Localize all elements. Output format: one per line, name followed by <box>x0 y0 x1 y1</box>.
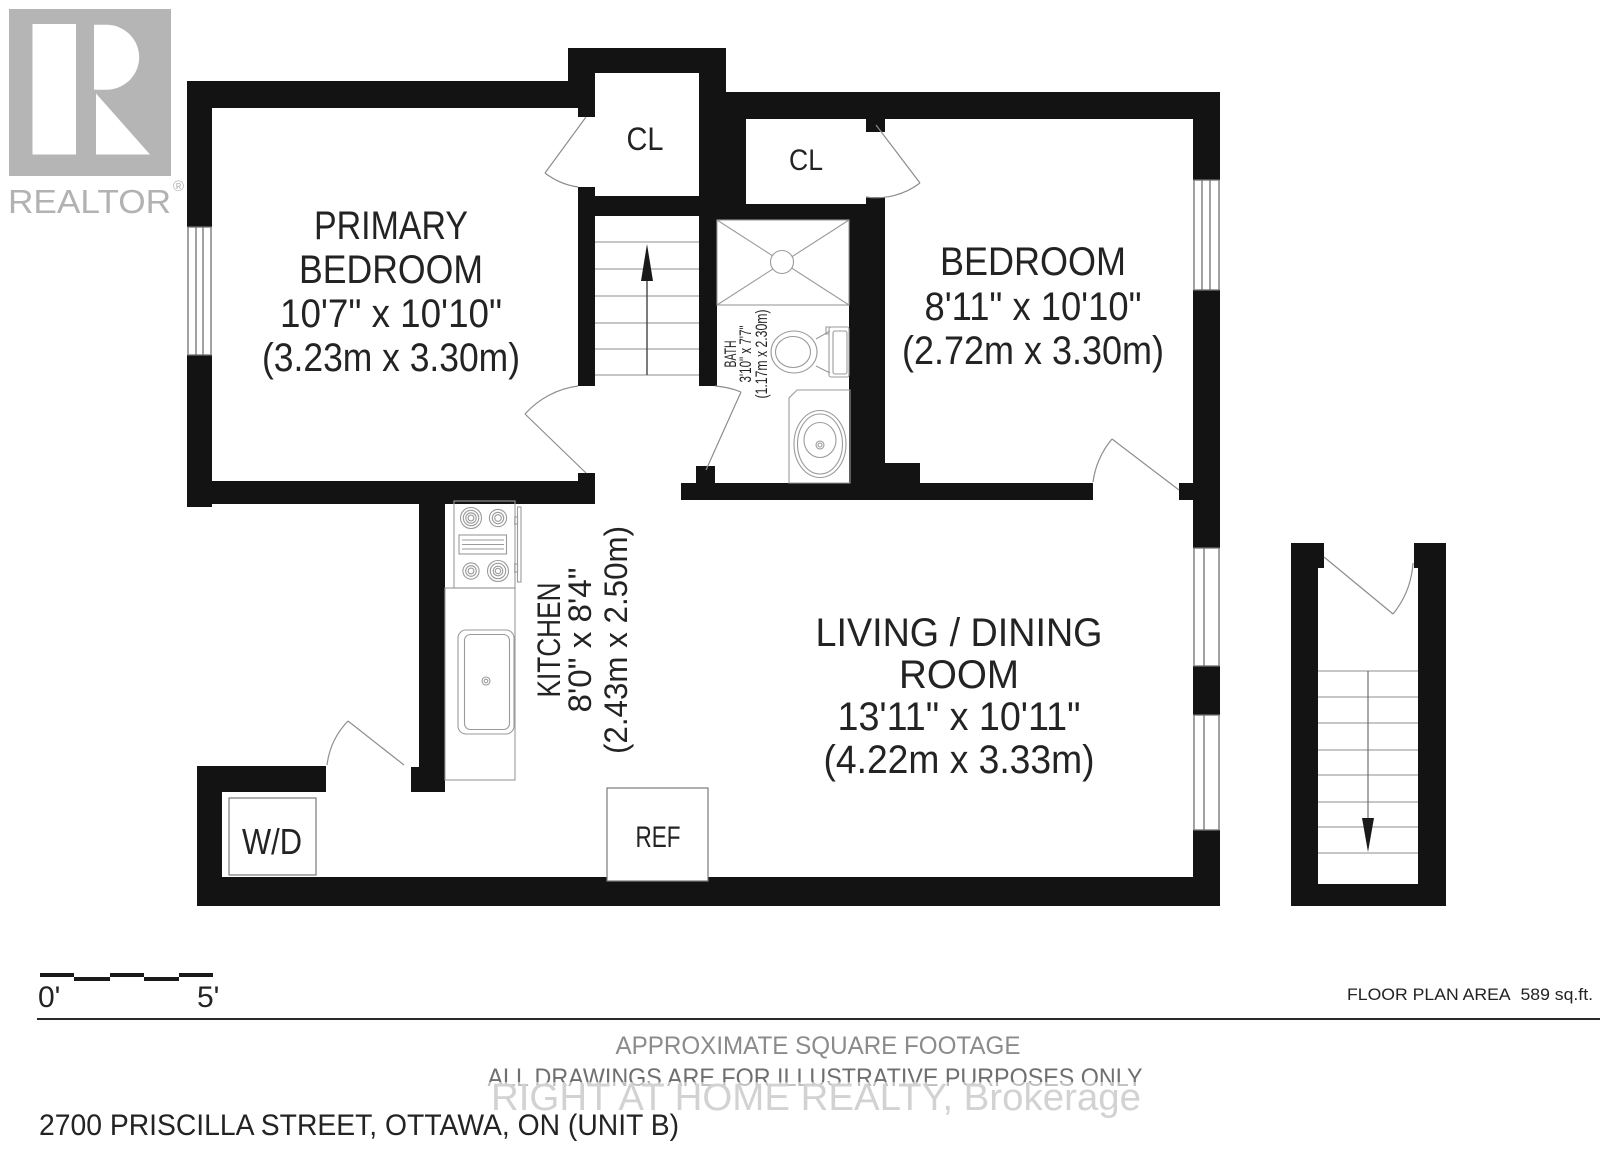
svg-text:REF: REF <box>636 821 681 854</box>
svg-text:ROOM: ROOM <box>899 653 1019 697</box>
svg-text:PRIMARY: PRIMARY <box>314 204 468 248</box>
svg-text:LIVING / DINING: LIVING / DINING <box>816 611 1103 655</box>
svg-text:13'11" x 10'11": 13'11" x 10'11" <box>838 695 1081 739</box>
svg-text:8'11" x 10'10": 8'11" x 10'10" <box>925 285 1142 329</box>
svg-text:(4.22m x 3.33m): (4.22m x 3.33m) <box>824 738 1095 782</box>
svg-text:BEDROOM: BEDROOM <box>299 248 483 292</box>
svg-text:(3.23m x 3.30m): (3.23m x 3.30m) <box>262 336 520 380</box>
svg-text:8'0" x 8'4": 8'0" x 8'4" <box>562 568 598 713</box>
svg-text:W/D: W/D <box>242 821 302 862</box>
svg-text:(2.43m x 2.50m): (2.43m x 2.50m) <box>598 526 634 754</box>
svg-text:®: ® <box>173 178 184 195</box>
svg-text:REALTOR: REALTOR <box>8 183 171 220</box>
svg-text:FLOOR PLAN AREA 589 sq.ft.: FLOOR PLAN AREA 589 sq.ft. <box>1347 985 1593 1004</box>
svg-text:(1.17m x 2.30m): (1.17m x 2.30m) <box>752 310 771 399</box>
svg-text:CL: CL <box>627 121 664 157</box>
svg-text:CL: CL <box>789 144 823 177</box>
svg-text:0': 0' <box>38 981 60 1014</box>
svg-text:10'7" x 10'10": 10'7" x 10'10" <box>280 292 502 336</box>
svg-text:2700 PRISCILLA STREET, OTTAWA,: 2700 PRISCILLA STREET, OTTAWA, ON (UNIT … <box>39 1109 679 1142</box>
svg-text:(2.72m x 3.30m): (2.72m x 3.30m) <box>902 329 1164 373</box>
svg-text:5': 5' <box>197 981 219 1014</box>
svg-text:APPROXIMATE SQUARE FOOTAGE: APPROXIMATE SQUARE FOOTAGE <box>616 1032 1021 1060</box>
svg-text:BEDROOM: BEDROOM <box>940 240 1126 284</box>
